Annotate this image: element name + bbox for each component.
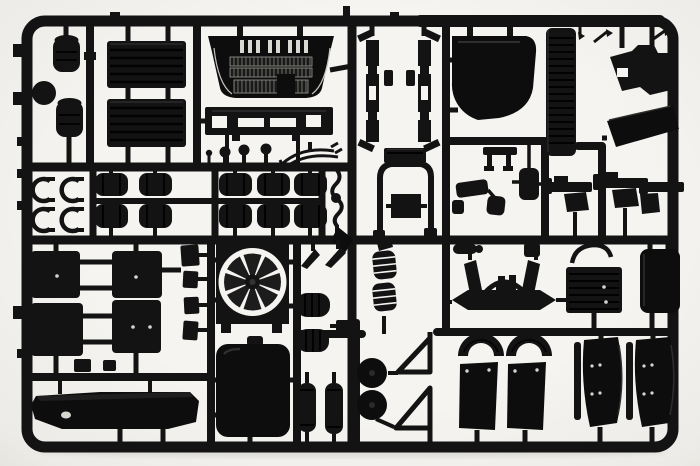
front-bumper bbox=[31, 377, 199, 443]
rear-fenders bbox=[574, 332, 674, 443]
step-brackets bbox=[543, 172, 684, 240]
cab-grille bbox=[208, 26, 352, 98]
chassis-bracket bbox=[357, 322, 430, 443]
slanted-panel bbox=[602, 105, 679, 147]
air-reservoirs bbox=[296, 293, 350, 352]
mirror-parts bbox=[452, 141, 545, 216]
roof-panels bbox=[107, 26, 186, 167]
clamp-parts bbox=[33, 177, 84, 232]
ribbed-skirt bbox=[546, 28, 576, 156]
hinge-brackets bbox=[357, 26, 441, 152]
coil-springs bbox=[372, 239, 398, 334]
photo-canvas bbox=[0, 0, 700, 466]
radiator-fan bbox=[211, 241, 297, 333]
front-fenders bbox=[458, 332, 552, 443]
radiator-tank bbox=[211, 336, 297, 443]
cab-corner-panel bbox=[446, 26, 536, 120]
engine-block bbox=[610, 26, 671, 95]
sprue-photo bbox=[0, 0, 700, 466]
door-panels bbox=[31, 240, 181, 377]
roof-hatch bbox=[373, 148, 437, 241]
fuel-cylinders bbox=[298, 372, 343, 443]
radiator-core bbox=[566, 267, 622, 332]
mirror-glass-plates bbox=[180, 244, 207, 340]
